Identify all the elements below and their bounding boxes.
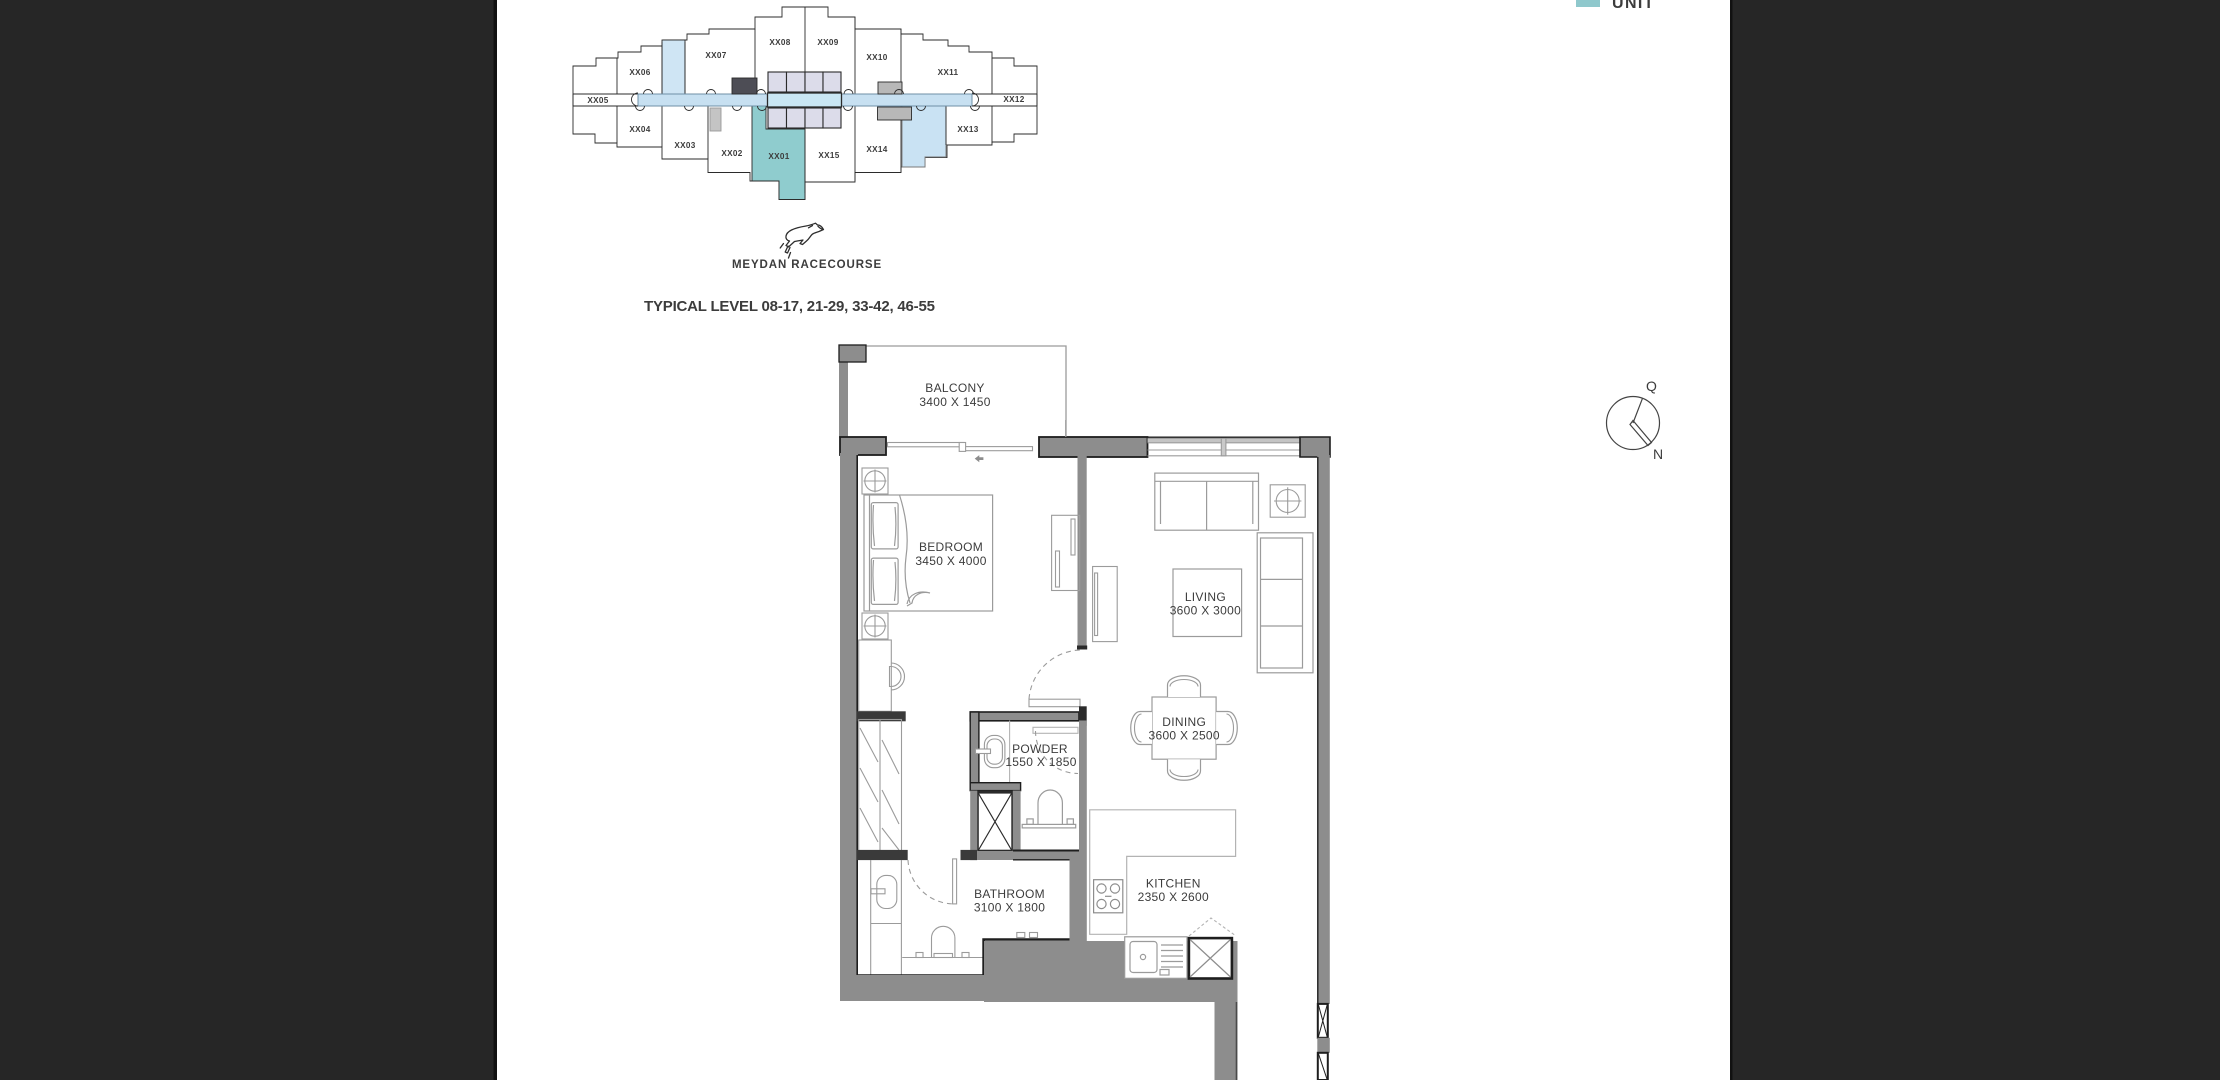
svg-text:XX13: XX13 [957, 125, 978, 134]
svg-text:UNIT: UNIT [1612, 0, 1655, 12]
svg-text:XX02: XX02 [721, 149, 742, 158]
svg-text:BALCONY: BALCONY [925, 381, 984, 395]
svg-text:POWDER: POWDER [1012, 742, 1068, 756]
svg-text:Q: Q [1646, 378, 1657, 394]
svg-text:XX06: XX06 [629, 68, 650, 77]
svg-text:XX12: XX12 [1003, 95, 1024, 104]
svg-text:2350 X 2600: 2350 X 2600 [1138, 890, 1209, 904]
svg-text:3450 X 4000: 3450 X 4000 [915, 554, 986, 568]
svg-text:XX14: XX14 [866, 145, 887, 154]
svg-text:BEDROOM: BEDROOM [919, 540, 983, 554]
svg-text:XX11: XX11 [938, 68, 959, 77]
svg-text:KITCHEN: KITCHEN [1146, 877, 1201, 891]
svg-text:XX15: XX15 [818, 151, 839, 160]
svg-text:3100 X 1800: 3100 X 1800 [974, 901, 1045, 915]
svg-text:DINING: DINING [1162, 715, 1206, 729]
svg-text:3600 X 2500: 3600 X 2500 [1149, 729, 1220, 743]
svg-text:N: N [1653, 446, 1663, 462]
svg-text:XX07: XX07 [705, 51, 726, 60]
svg-text:XX05: XX05 [587, 96, 608, 105]
svg-text:1550 X 1850: 1550 X 1850 [1005, 755, 1076, 769]
svg-text:TYPICAL LEVEL 08-17, 21-29, 33: TYPICAL LEVEL 08-17, 21-29, 33-42, 46-55 [644, 298, 935, 315]
svg-text:3600 X 3000: 3600 X 3000 [1170, 604, 1241, 618]
svg-text:XX10: XX10 [866, 53, 887, 62]
svg-text:XX01: XX01 [768, 152, 789, 161]
svg-text:XX04: XX04 [629, 125, 650, 134]
svg-text:BATHROOM: BATHROOM [974, 887, 1045, 901]
svg-text:XX08: XX08 [769, 38, 790, 47]
svg-text:LIVING: LIVING [1185, 590, 1226, 604]
svg-text:XX03: XX03 [674, 141, 695, 150]
svg-text:XX09: XX09 [817, 38, 838, 47]
svg-text:MEYDAN RACECOURSE: MEYDAN RACECOURSE [732, 259, 882, 271]
svg-text:3400 X 1450: 3400 X 1450 [919, 395, 990, 409]
